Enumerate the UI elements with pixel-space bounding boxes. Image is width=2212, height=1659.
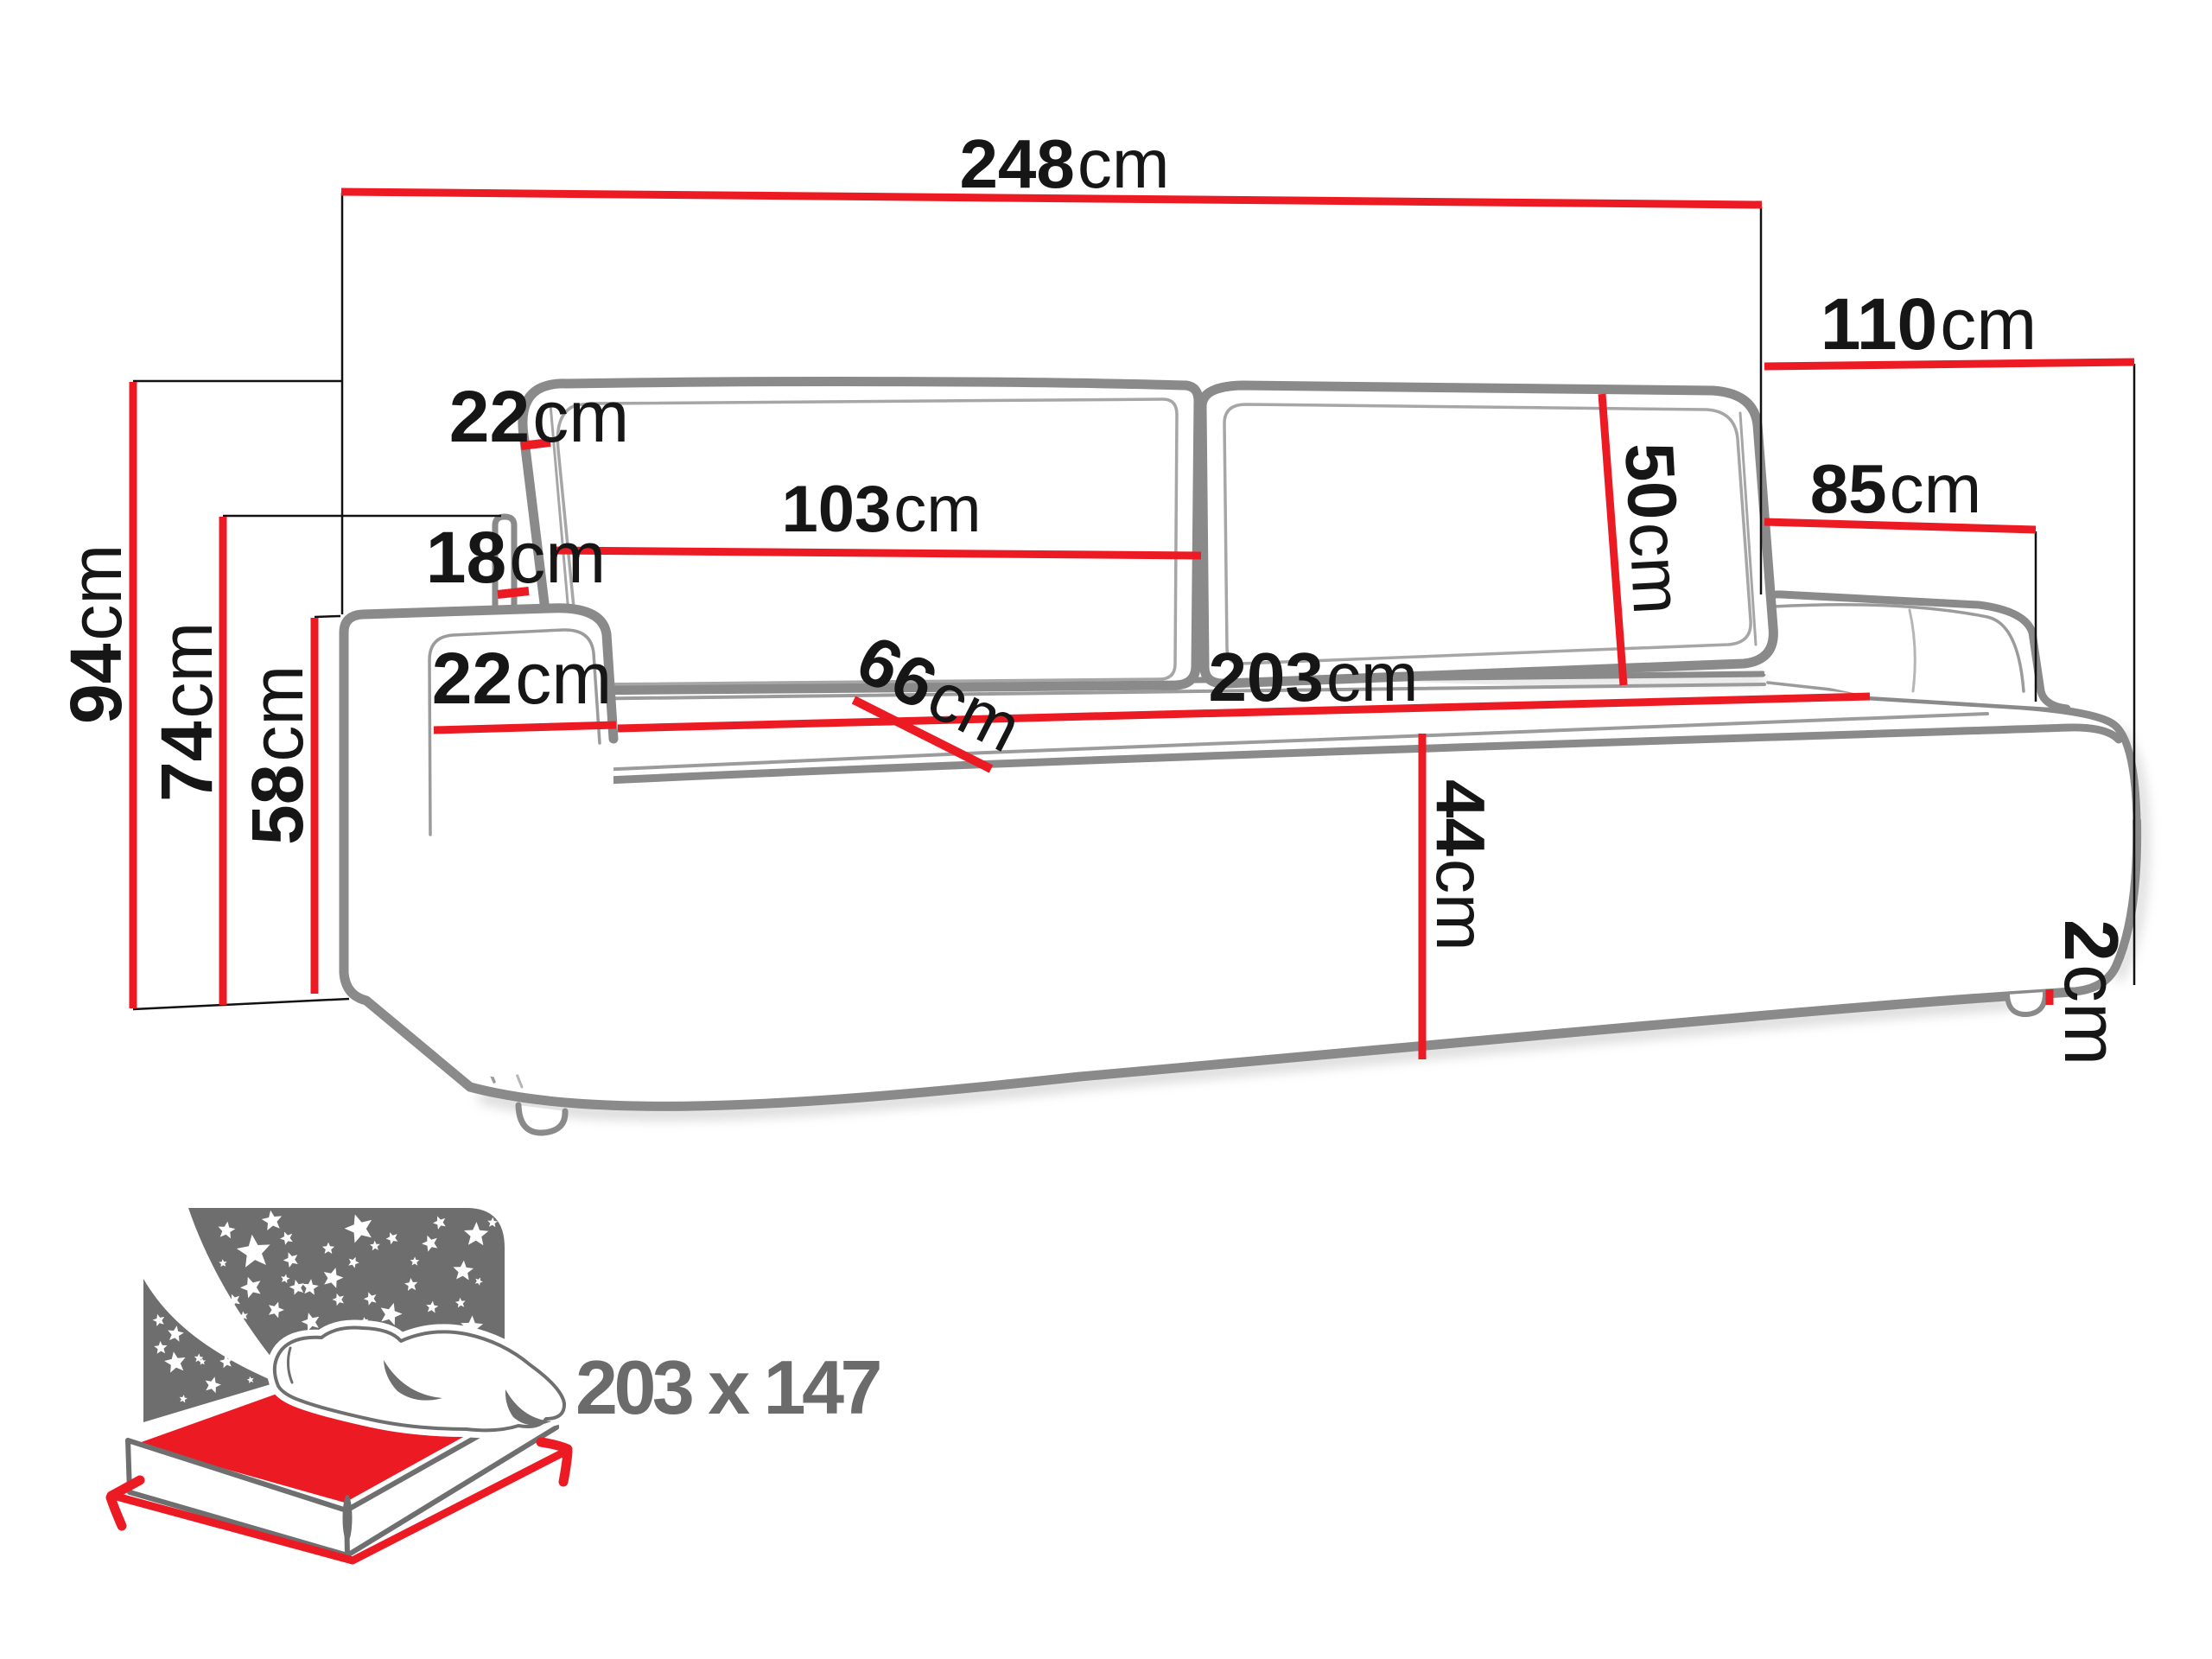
svg-text:50cm: 50cm [1611,441,1696,616]
svg-text:94cm: 94cm [55,544,137,724]
svg-text:74cm: 74cm [146,622,227,802]
svg-text:44cm: 44cm [1422,779,1499,951]
svg-text:248cm: 248cm [959,125,1169,202]
svg-text:2cm: 2cm [2049,919,2134,1065]
svg-text:110cm: 110cm [1821,283,2037,365]
svg-text:203cm: 203cm [1208,639,1418,715]
svg-text:85cm: 85cm [1810,450,1982,527]
svg-text:18cm: 18cm [426,517,606,598]
svg-text:203 x 147: 203 x 147 [575,1344,880,1430]
svg-text:58cm: 58cm [237,665,318,845]
svg-text:103cm: 103cm [781,473,981,546]
svg-text:22cm: 22cm [449,376,629,457]
svg-text:22cm: 22cm [432,638,612,719]
